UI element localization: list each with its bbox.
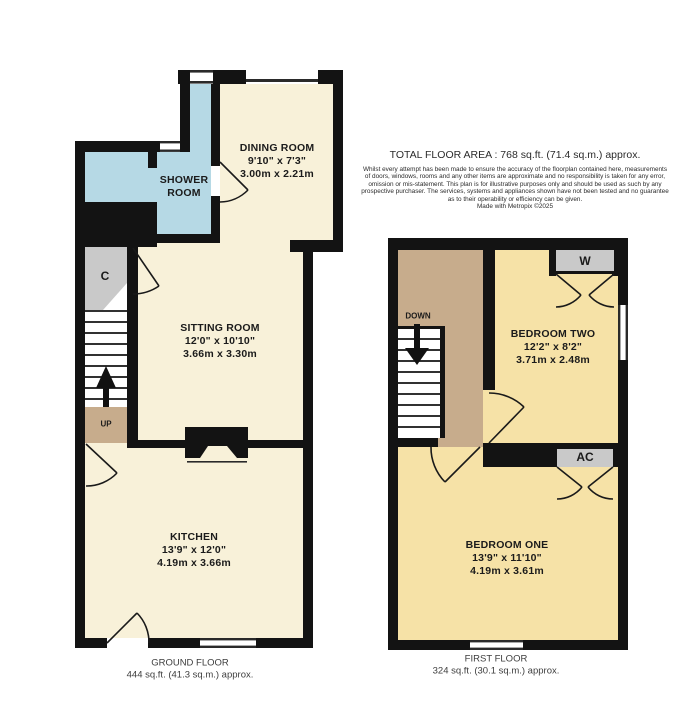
room-dimensions-imperial: 9'10" x 7'3" — [240, 155, 315, 168]
disclaimer-line: of doors, windows, rooms and any other i… — [350, 173, 680, 180]
cupboard-label: C — [101, 269, 110, 283]
sitting-room-label: SITTING ROOM 12'0" x 10'10" 3.66m x 3.30… — [180, 322, 259, 360]
first-floor-footer: FIRST FLOOR 324 sq.ft. (30.1 sq.m.) appr… — [433, 654, 560, 677]
room-name: ROOM — [160, 187, 208, 200]
made-with-text: Made with Metropix ©2025 — [350, 203, 680, 210]
total-floor-area-block: TOTAL FLOOR AREA : 768 sq.ft. (71.4 sq.m… — [350, 149, 680, 210]
room-name: KITCHEN — [157, 531, 231, 544]
ground-floor-area: 444 sq.ft. (41.3 sq.m.) approx. — [127, 669, 254, 681]
window — [190, 70, 213, 84]
fireplace-chimney-breast — [185, 427, 248, 463]
shower-room-label: SHOWER ROOM — [160, 174, 208, 200]
chimney-solid — [75, 202, 157, 247]
room-dimensions-metric: 3.71m x 2.48m — [511, 353, 595, 366]
disclaimer-line: Whilst every attempt has been made to en… — [350, 166, 680, 173]
airing-cupboard-label: AC — [576, 450, 593, 464]
window — [160, 141, 180, 152]
up-label: UP — [100, 420, 111, 429]
room-dimensions-metric: 4.19m x 3.66m — [157, 556, 231, 569]
bedroom-two-label: BEDROOM TWO 12'2" x 8'2" 3.71m x 2.48m — [511, 328, 595, 366]
room-name: DINING ROOM — [240, 142, 315, 155]
window — [618, 305, 628, 360]
room-name: BEDROOM ONE — [466, 539, 549, 552]
room-name: SHOWER — [160, 174, 208, 187]
window — [246, 70, 318, 84]
window — [200, 638, 256, 648]
room-dimensions-metric: 3.00m x 2.21m — [240, 167, 315, 180]
window — [470, 640, 523, 650]
disclaimer-line: prospective purchaser. The services, sys… — [350, 188, 680, 195]
room-dimensions-imperial: 12'2" x 8'2" — [511, 341, 595, 354]
ground-floor-footer: GROUND FLOOR 444 sq.ft. (41.3 sq.m.) app… — [127, 658, 254, 681]
total-floor-area-text: TOTAL FLOOR AREA : 768 sq.ft. (71.4 sq.m… — [350, 149, 680, 161]
floorplan-document: TOTAL FLOOR AREA : 768 sq.ft. (71.4 sq.m… — [0, 0, 700, 722]
room-dimensions-imperial: 13'9" x 11'10" — [466, 552, 549, 565]
stairs-down — [398, 326, 445, 438]
room-dimensions-imperial: 12'0" x 10'10" — [180, 335, 259, 348]
first-floor-area: 324 sq.ft. (30.1 sq.m.) approx. — [433, 665, 560, 677]
disclaimer-line: as to their operability or efficiency ca… — [350, 196, 680, 203]
wardrobe-label: W — [579, 254, 590, 268]
ground-floor-title: GROUND FLOOR — [127, 658, 254, 670]
room-dimensions-metric: 3.66m x 3.30m — [180, 347, 259, 360]
room-name: SITTING ROOM — [180, 322, 259, 335]
down-label: DOWN — [405, 312, 430, 321]
dining-room-label: DINING ROOM 9'10" x 7'3" 3.00m x 2.21m — [240, 142, 315, 180]
room-dimensions-metric: 4.19m x 3.61m — [466, 564, 549, 577]
room-name: BEDROOM TWO — [511, 328, 595, 341]
disclaimer-line: omission or mis-statement. This plan is … — [350, 181, 680, 188]
bedroom-one-label: BEDROOM ONE 13'9" x 11'10" 4.19m x 3.61m — [466, 539, 549, 577]
kitchen-label: KITCHEN 13'9" x 12'0" 4.19m x 3.66m — [157, 531, 231, 569]
room-dimensions-imperial: 13'9" x 12'0" — [157, 544, 231, 557]
first-floor-plan — [388, 238, 628, 650]
first-floor-title: FIRST FLOOR — [433, 654, 560, 666]
